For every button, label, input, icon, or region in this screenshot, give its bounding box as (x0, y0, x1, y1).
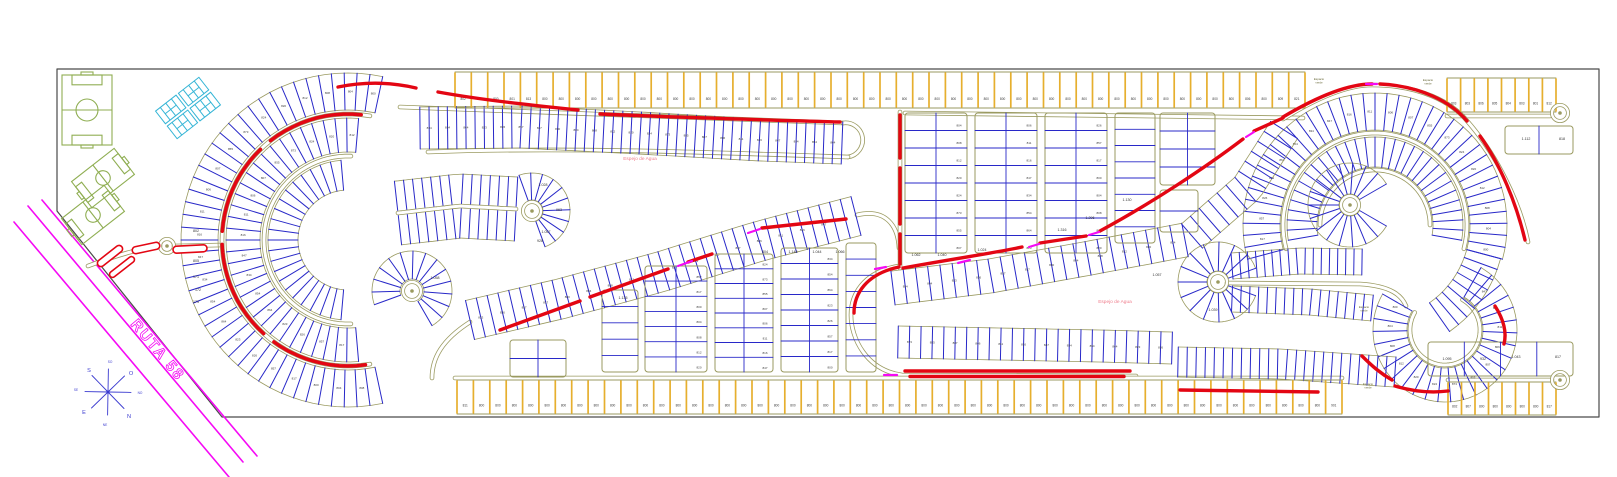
lot-number: 857 (1001, 272, 1006, 276)
lot-divider (271, 253, 300, 261)
lot-number: 800 (640, 97, 646, 101)
lot-number: 801 (1533, 102, 1539, 106)
lot-divider (1190, 216, 1211, 240)
lot-number: 800 (1049, 97, 1055, 101)
lot-number: 806 (1478, 102, 1484, 106)
lot-number: 826 (300, 333, 305, 337)
lot-divider (344, 73, 345, 110)
lot-number: 800 (1479, 405, 1485, 409)
lot-divider (1345, 293, 1348, 319)
lot-divider (228, 216, 261, 223)
lot-size-number: 1.043 (1512, 355, 1521, 359)
lot-divider (229, 123, 255, 149)
lot-divider (1251, 151, 1278, 168)
lot-divider (1470, 233, 1507, 236)
lot-divider (1483, 320, 1517, 325)
lot-divider (449, 175, 452, 204)
lot-number: 864 (221, 319, 226, 323)
lot-number: 826 (976, 275, 981, 279)
lot-number: 800 (1049, 263, 1054, 267)
lot-divider (1241, 348, 1242, 378)
lot-number: 800 (1520, 405, 1526, 409)
lot-divider (487, 210, 489, 239)
lot-divider (1450, 145, 1479, 168)
lot-divider (183, 214, 220, 220)
cul-de-sac-center (1216, 280, 1220, 284)
lot-divider (1223, 348, 1224, 378)
lot-number: 800 (1216, 404, 1222, 408)
lot-number: 800 (708, 404, 714, 408)
lot-number: 800 (1131, 97, 1137, 101)
lot-number: 820 (629, 131, 634, 135)
lot-divider (1103, 330, 1104, 362)
lot-number: 847 (775, 139, 780, 143)
lot-divider (253, 296, 279, 318)
lot-number: 812 (1547, 102, 1553, 106)
lot-number: 826 (500, 125, 505, 129)
lot-number: 800 (856, 404, 862, 408)
lot-number: 800 (921, 404, 927, 408)
lot-number: 855 (684, 134, 689, 138)
lot-divider (487, 296, 496, 335)
lot-divider (989, 328, 990, 360)
lot-divider (1470, 223, 1507, 224)
lot-divider (1357, 213, 1377, 236)
lot-number: 800 (771, 97, 777, 101)
lot-number: 800 (787, 97, 793, 101)
lot-divider (1085, 242, 1091, 276)
lot-divider (1296, 248, 1298, 274)
lot-divider (1178, 347, 1179, 377)
lot-number: 873 (1452, 382, 1457, 386)
lot-divider (404, 180, 407, 209)
lot-strip-top: 8028008008018138008008008008008008008008… (455, 72, 1305, 108)
lot-divider (1218, 242, 1219, 271)
lot-divider (940, 265, 944, 299)
lot-number: 812 (696, 351, 701, 355)
lot-divider (1203, 245, 1214, 272)
lot-size-number: 802 (193, 229, 199, 233)
lot-number: 901 (1331, 404, 1337, 408)
highlight-route (222, 83, 1525, 392)
lot-divider (453, 209, 456, 238)
lot-number: 806 (762, 322, 767, 326)
lot-number: 824 (762, 263, 767, 267)
lot-number: 816 (1026, 159, 1031, 163)
goal (77, 192, 84, 200)
block-outline (602, 290, 638, 372)
lot-size-number: 1.130 (1123, 198, 1132, 202)
lot-number: 807 (953, 341, 958, 345)
lot-number: 801 (510, 97, 516, 101)
lot-number: 800 (918, 97, 924, 101)
lot-number: 800 (1033, 97, 1039, 101)
lot-divider (1296, 119, 1318, 149)
lot-number: 873 (956, 211, 961, 215)
lot-number: 834 (1026, 194, 1031, 198)
perimeter-strips: 8028008008018138008008008008008008008008… (455, 72, 1556, 415)
lot-number: 806 (206, 187, 211, 191)
lot-number: 800 (1102, 404, 1108, 408)
lot-block: 804808812820824873855807 (905, 113, 967, 253)
road-center (428, 150, 848, 157)
lot-number: 817 (1260, 237, 1265, 241)
entrance-gate (96, 242, 207, 279)
lot-number: 817 (339, 343, 344, 347)
lot-number: 800 (561, 404, 567, 408)
lot-divider (335, 328, 339, 362)
lot-divider (1453, 280, 1482, 300)
lot-divider (269, 229, 299, 233)
lot-number: 800 (555, 127, 560, 131)
lot-number: 800 (827, 366, 832, 370)
lot-number: 800 (544, 404, 550, 408)
lot-divider (1371, 295, 1374, 321)
road-center (1320, 170, 1430, 225)
lot-divider (1205, 348, 1206, 378)
lot-number: 847 (1026, 176, 1031, 180)
lot-number: 807 (1485, 362, 1490, 366)
lot-number: 800 (1483, 247, 1488, 251)
lot-divider (1425, 113, 1444, 145)
lot-number: 800 (1000, 97, 1006, 101)
lot-number: 800 (1036, 404, 1042, 408)
lot-divider (1345, 142, 1355, 170)
lot-number: 806 (757, 239, 762, 243)
lot-size-number: 932 (1480, 357, 1486, 361)
lot-size-number: 1.040 (938, 253, 947, 257)
lot-divider (372, 291, 400, 292)
lot-divider (462, 174, 464, 203)
lot-divider (1358, 355, 1360, 385)
lot-divider (505, 211, 507, 240)
lot-divider (507, 177, 509, 206)
lot-number: 873 (243, 130, 248, 134)
lot-divider (1464, 268, 1481, 298)
lot-number: 803 (1451, 102, 1457, 106)
lot-number: 800 (938, 404, 944, 408)
lot-number: 816 (241, 233, 246, 237)
lot-number: 812 (1399, 361, 1404, 365)
lake-label-left: Espejo de Agua (623, 156, 657, 162)
lot-number: 804 (956, 124, 961, 128)
lot-size-number: 1.112 (1522, 137, 1531, 141)
lot-number: 800 (1180, 97, 1186, 101)
lot-number: 807 (702, 135, 707, 139)
lot-number: 820 (1414, 375, 1419, 379)
lot-number: 804 (1388, 324, 1393, 328)
lot-divider (182, 227, 219, 230)
lot-number: 807 (956, 246, 961, 250)
lot-divider (1231, 253, 1233, 279)
lot-number: 817 (543, 300, 548, 304)
lot-band: 873855807806811816847834854864823826 (898, 326, 1173, 364)
lot-divider (1080, 330, 1081, 362)
soccer-field (62, 72, 112, 148)
lot-band (1231, 248, 1362, 279)
lot-size-number: 1.148 (789, 250, 798, 254)
lot-number: 802 (1452, 405, 1458, 409)
lot-size-number: 928 (537, 239, 543, 243)
sports-fields (59, 72, 137, 246)
lot-number: 800 (676, 404, 682, 408)
lot-divider (355, 73, 357, 110)
lot-number: 808 (325, 91, 330, 95)
lot-number: 800 (659, 404, 665, 408)
lot-divider (1327, 291, 1330, 317)
lot-number: 807 (215, 166, 220, 170)
lot-divider (519, 175, 528, 200)
lot-divider (1172, 332, 1173, 364)
lot-number: 864 (830, 141, 835, 145)
lot-number: 817 (537, 126, 542, 130)
court (167, 110, 197, 139)
lot-divider (514, 212, 516, 241)
lot-number: 812 (303, 96, 308, 100)
lot-divider (1365, 138, 1369, 168)
lot-number: 800 (1053, 404, 1059, 408)
lot-number: 847 (1327, 119, 1332, 123)
lot-divider (493, 106, 494, 148)
lot-divider (1438, 368, 1441, 402)
lot-divider (1360, 184, 1387, 200)
lot-divider (1474, 285, 1500, 307)
lot-divider (1392, 95, 1399, 131)
court-line (177, 120, 188, 129)
lot-number: 800 (872, 404, 878, 408)
lot-number: 823 (282, 322, 287, 326)
lot-number: 847 (242, 253, 247, 257)
lot-divider (1351, 216, 1353, 247)
lot-number: 873 (907, 340, 912, 344)
cul-de-sac-center (530, 209, 534, 213)
lot-divider (238, 114, 262, 142)
band-edge (475, 235, 862, 339)
lot-divider (1258, 287, 1259, 313)
lot-divider (1353, 293, 1356, 319)
courts-group (156, 77, 221, 138)
lot-divider (1384, 94, 1387, 131)
lot-divider (1133, 233, 1139, 266)
lot-divider (498, 176, 500, 205)
lot-number: 800 (967, 97, 973, 101)
lot-number: 855 (762, 292, 767, 296)
lot-block: 824873855807806811816847 (715, 254, 773, 372)
green-space-label: verde (1424, 81, 1432, 85)
lot-divider (943, 327, 944, 359)
lot-number: 800 (722, 97, 728, 101)
lot-divider (466, 301, 475, 340)
lot-divider (1373, 331, 1407, 332)
lot-number: 854 (1090, 344, 1095, 348)
lot-divider (1288, 249, 1290, 275)
lot-number: 800 (591, 97, 597, 101)
lot-divider (1149, 331, 1150, 363)
lot-block (602, 290, 638, 372)
lot-number: 855 (1427, 124, 1432, 128)
lot-divider (1243, 223, 1280, 224)
lot-number: 800 (608, 97, 614, 101)
lot-number: 854 (255, 292, 260, 296)
lot-divider (1433, 228, 1463, 230)
lot-divider (1336, 292, 1339, 318)
lot-number: 834 (1309, 129, 1314, 133)
lot-divider (344, 370, 345, 407)
compass-ray (92, 376, 108, 393)
route-dash (748, 229, 760, 233)
lot-divider (1012, 328, 1013, 360)
lot-size-number: 171 (193, 275, 199, 279)
lot-size-number: 1.028 (539, 183, 548, 187)
penalty-box (72, 75, 102, 85)
lot-divider (1412, 158, 1431, 181)
lot-divider (1432, 210, 1462, 215)
lot-number: 811 (200, 209, 205, 213)
compass-center (106, 390, 109, 393)
lot-divider (1291, 200, 1320, 209)
lot-divider (220, 323, 248, 347)
lot-divider (1208, 201, 1229, 225)
lot-size-number: 1.066 (836, 250, 845, 254)
lot-number: 857 (271, 366, 276, 370)
lot-number: 806 (1388, 111, 1393, 115)
lot-number: 854 (827, 273, 832, 277)
lot-number: 816 (762, 351, 767, 355)
lot-divider (1243, 233, 1280, 236)
lot-divider (227, 249, 261, 252)
lot-divider (1402, 360, 1423, 387)
lot-number: 800 (1016, 97, 1022, 101)
route-segment (1395, 386, 1448, 392)
lot-divider (787, 213, 797, 252)
lot-number: 816 (1347, 112, 1352, 116)
lot-divider (416, 214, 419, 243)
lot-number: 812 (1480, 186, 1485, 190)
lot-divider (293, 276, 314, 298)
goal (112, 193, 119, 201)
lot-divider (1470, 211, 1507, 215)
lot-divider (1235, 177, 1256, 201)
lot-divider (270, 308, 292, 334)
lot-divider (412, 251, 413, 279)
compass-ray (108, 376, 125, 392)
lot-divider (323, 326, 330, 359)
lot-number: 823 (478, 315, 483, 319)
lot-number: 800 (594, 404, 600, 408)
lot-number: 811 (763, 336, 768, 340)
lot-size-number: 1.039 (1209, 308, 1218, 312)
lot-band (394, 174, 517, 245)
court (156, 95, 186, 124)
lot-divider (356, 119, 359, 153)
goal (81, 145, 93, 148)
band-edge (1232, 312, 1371, 321)
lot-number: 808 (608, 283, 613, 287)
lot-number: 800 (971, 404, 977, 408)
lot-divider (426, 213, 429, 242)
lot-divider (1357, 173, 1377, 196)
lot-divider (1158, 228, 1164, 261)
lot-divider (1058, 329, 1059, 361)
lot-number: 800 (479, 404, 485, 408)
lot-number: 857 (1096, 141, 1101, 145)
lot-number: 817 (827, 350, 832, 354)
lot-size-number: 1.296 (1086, 216, 1095, 220)
lot-number: 800 (886, 97, 892, 101)
lot-number: 834 (427, 126, 432, 130)
lot-number: 800 (790, 404, 796, 408)
route-segment (903, 247, 1022, 268)
lot-divider (1249, 287, 1250, 313)
lot-number: 808 (696, 335, 701, 339)
lot-divider (424, 281, 451, 288)
lot-size-number: 173 (193, 300, 199, 304)
lot-number: 816 (800, 228, 805, 232)
lot-number: 824 (1432, 382, 1437, 386)
lot-number: 826 (1158, 346, 1163, 350)
lot-number: 808 (359, 386, 364, 390)
lot-number: 854 (903, 284, 908, 288)
lot-number: 823 (952, 278, 957, 282)
lot-divider (573, 275, 583, 314)
lot-divider (1455, 155, 1486, 175)
lot-number: 826 (1096, 124, 1101, 128)
lot-divider (301, 175, 319, 199)
lot-divider (355, 370, 357, 407)
lot-number: 800 (1493, 405, 1499, 409)
lot-number: 816 (757, 138, 762, 142)
lot-divider (1287, 220, 1317, 222)
lot-number: 873 (762, 277, 767, 281)
green-space-label: verde (1364, 385, 1372, 389)
lot-number: 817 (696, 290, 701, 294)
road (432, 322, 470, 378)
lot-divider (988, 259, 994, 293)
lot-divider (424, 292, 452, 294)
lot-divider (1035, 329, 1036, 361)
lot-divider (1432, 235, 1462, 240)
lot-number: 811 (778, 234, 783, 238)
lot-number: 800 (954, 404, 960, 408)
lot-number: 824 (1170, 240, 1175, 244)
lot-divider (228, 257, 261, 264)
lot-number: 800 (577, 404, 583, 408)
band-edge (402, 238, 515, 245)
lot-number: 807 (736, 246, 741, 250)
lot-divider (365, 75, 370, 112)
lot-number: 800 (1167, 404, 1173, 408)
lot-number: 800 (1200, 404, 1206, 408)
lot-divider (356, 328, 359, 362)
lot-divider (293, 182, 314, 204)
compass-s: S (87, 368, 91, 374)
lot-number: 808 (1096, 211, 1101, 215)
lot-divider (1401, 146, 1415, 173)
cul-de-sac-center (410, 289, 414, 293)
compass-rose (85, 369, 131, 415)
lot-number: 805 (1492, 102, 1498, 106)
lot-divider (253, 163, 279, 185)
lot-number: 800 (565, 295, 570, 299)
site-plan-page: 8008048088128208248738558078068118168478… (0, 0, 1617, 477)
ring-inner-edge (1430, 250, 1467, 303)
route-segment (590, 269, 668, 297)
lot-number: 800 (1069, 404, 1075, 408)
lot-divider (227, 228, 261, 231)
lot-number: 811 (1367, 110, 1372, 114)
goal (81, 72, 93, 75)
lot-number: 800 (1082, 97, 1088, 101)
